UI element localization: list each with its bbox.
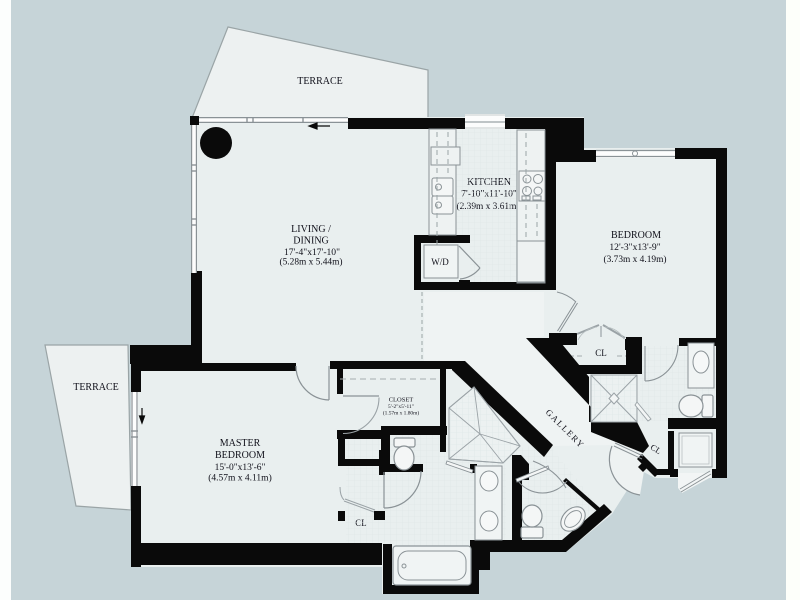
svg-text:CLOSET: CLOSET [389,397,414,404]
svg-text:BEDROOM: BEDROOM [611,230,661,241]
svg-text:(3.73m x 4.19m): (3.73m x 4.19m) [603,254,666,265]
svg-text:W/D: W/D [431,257,449,267]
svg-text:(1.57m x 1.80m): (1.57m x 1.80m) [383,410,419,417]
svg-text:5'-2"x5'-11": 5'-2"x5'-11" [388,404,414,410]
svg-text:(5.28m x 5.44m): (5.28m x 5.44m) [279,257,342,268]
svg-text:15'-0"x13'-6": 15'-0"x13'-6" [215,463,266,473]
svg-text:MASTER: MASTER [220,438,261,449]
svg-text:(4.57m x 4.11m): (4.57m x 4.11m) [208,473,272,484]
svg-text:LIVING /: LIVING / [291,224,331,235]
svg-text:12'-3"x13'-9": 12'-3"x13'-9" [609,242,660,253]
svg-text:TERRACE: TERRACE [297,76,343,87]
svg-text:DINING: DINING [293,236,329,247]
svg-text:CL: CL [595,348,607,358]
svg-text:BEDROOM: BEDROOM [215,450,265,461]
svg-text:TERRACE: TERRACE [73,382,119,393]
svg-text:17'-4"x17'-10": 17'-4"x17'-10" [284,247,340,258]
